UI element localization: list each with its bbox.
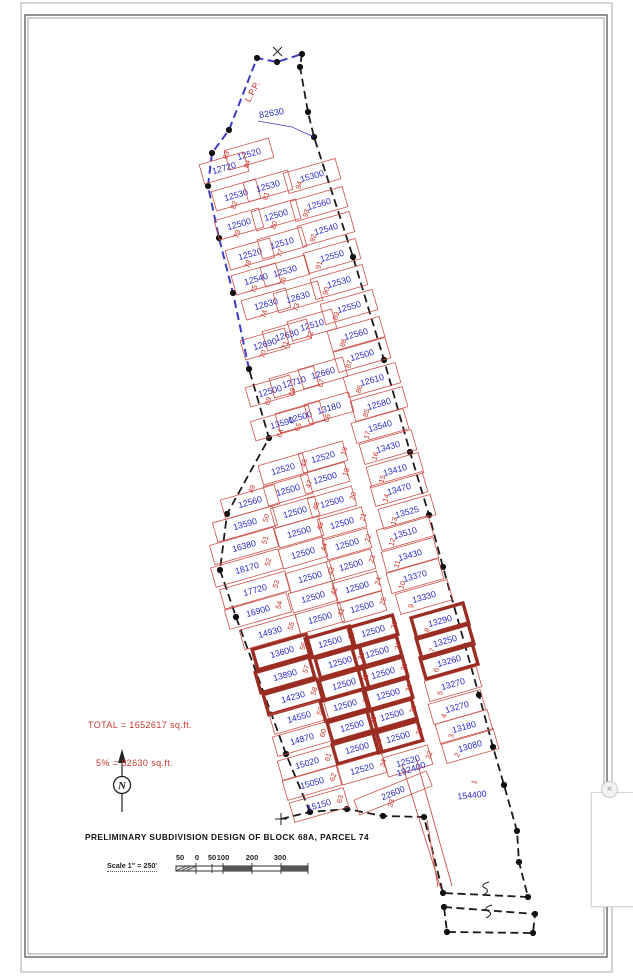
- lot-3-area-label: 13180: [451, 719, 477, 735]
- lot-38-area-label: 12500: [331, 676, 357, 692]
- section-squiggle-icon-2: [486, 905, 492, 918]
- lot-63-number-label: 63: [335, 794, 346, 804]
- lot-24-number-label: 24: [373, 576, 384, 586]
- lot-73-number-label: 73: [291, 302, 302, 312]
- boundary-dot: [440, 890, 446, 896]
- lot-19-number-label: 19: [341, 467, 352, 477]
- lot-22-number-label: 22: [363, 533, 374, 543]
- section-squiggle-icon: [483, 882, 489, 895]
- boundary-dot: [254, 55, 260, 61]
- lot-70-area-label: 12690: [252, 336, 278, 352]
- lot-69-number-label: 69: [263, 396, 274, 406]
- scale-tick-label: 0: [195, 853, 199, 862]
- lot-74-number-label: 74: [259, 309, 270, 319]
- boundary-dot: [217, 567, 223, 573]
- lot-30-area-label: 12500: [379, 707, 405, 723]
- lot-48-number-label: 48: [299, 458, 310, 468]
- lot-89-area-label: 12550: [336, 299, 362, 315]
- boundary-dot: [525, 894, 531, 900]
- lot-49-area-label: 12560: [237, 494, 263, 510]
- lot-19-area-label: 12500: [312, 470, 338, 486]
- annotation-lpp-label: L.P.P.: [243, 79, 262, 103]
- boundary-dot: [226, 127, 232, 133]
- scale-bar-seg-dark1: [223, 866, 252, 871]
- lot-52-area-label: 18170: [234, 560, 260, 576]
- lot-34-area-label: 12520: [349, 761, 375, 777]
- lot-48-area-label: 12520: [270, 461, 296, 477]
- lot-62-number-label: 62: [328, 772, 339, 782]
- boundary-dot: [380, 813, 386, 819]
- lot-25-number-label: 25: [378, 596, 389, 606]
- lot-39-area-label: 12500: [327, 654, 353, 670]
- lot-77-area-label: 12510: [269, 235, 295, 251]
- side-panel: [591, 792, 633, 907]
- lot-1-number-label: 1: [469, 779, 479, 785]
- lot-85-area-label: 12580: [366, 396, 392, 412]
- lot-62-area-label: 15050: [299, 775, 325, 791]
- lot-82-number-label: 82: [229, 200, 240, 210]
- scale-tick-label: 100: [217, 853, 230, 862]
- lot-41-area-label: 12500: [307, 610, 333, 626]
- boundary-dot: [421, 814, 427, 820]
- lot-73-area-label: 12630: [285, 289, 311, 305]
- lot-87-area-label: 12500: [349, 347, 375, 363]
- lot-9-area-label: 13330: [411, 589, 437, 605]
- boundary-dot: [209, 150, 215, 156]
- lot-11-area-label: 13430: [397, 547, 423, 563]
- lot-72-area-label: 12510: [299, 317, 325, 333]
- lot-61-number-label: 61: [323, 752, 334, 762]
- lot-84-area-label: 12520: [236, 146, 262, 162]
- lot-56-area-label: 13600: [269, 644, 295, 660]
- lot-23-area-label: 12500: [338, 557, 364, 573]
- scale-bar: [176, 863, 308, 874]
- lot-43-area-label: 12500: [297, 569, 323, 585]
- lot-92-area-label: 12540: [313, 221, 339, 237]
- lot-80-number-label: 80: [269, 220, 280, 230]
- scale-tick-label: 50: [176, 853, 184, 862]
- lot-78-number-label: 78: [243, 259, 254, 269]
- lot-59-area-label: 14550: [286, 709, 312, 725]
- lot-13-area-label: 13525: [394, 504, 420, 520]
- lot-71-area-label: 12630: [274, 327, 300, 343]
- lot-93-area-label: 12560: [306, 196, 332, 212]
- lots-layer: 1252084127208312530821253081125008012500…: [199, 138, 499, 822]
- five-percent-line: 5% = 82630 sq.ft.: [88, 757, 192, 770]
- lot-64-number-label: 64: [275, 428, 286, 438]
- lot-20-area-label: 12500: [319, 494, 345, 510]
- lot-25-area-label: 12500: [349, 599, 375, 615]
- lot-26-area-label: 12500: [360, 623, 386, 639]
- lot-53-area-label: 17720: [242, 582, 268, 598]
- scale-bar-seg-dark2: [281, 866, 308, 871]
- boundary-dot: [350, 254, 356, 260]
- lot-54-number-label: 54: [274, 600, 285, 610]
- lot-16-area-label: 13430: [375, 439, 401, 455]
- lot-51-area-label: 16380: [231, 538, 257, 554]
- lot-86-area-label: 12610: [359, 372, 385, 388]
- sheet-outer-frame: [21, 3, 612, 972]
- lot-21-area-label: 12500: [329, 515, 355, 531]
- lot-17-area-label: 13540: [367, 418, 393, 434]
- lot-94-area-label: 15300: [299, 168, 325, 184]
- lot-1-area-label: 154400: [457, 788, 487, 801]
- lot-60-number-label: 60: [318, 728, 329, 738]
- boundary-dot: [274, 59, 280, 65]
- lot-79-number-label: 79: [232, 229, 243, 239]
- lot-55-area-label: 14930: [257, 624, 283, 640]
- lot-90-area-label: 12530: [326, 274, 352, 290]
- lot-88-area-label: 12560: [343, 326, 369, 342]
- lot-61-area-label: 15020: [294, 755, 320, 771]
- scale-tick-label: 200: [246, 853, 259, 862]
- scale-label: Scale 1" = 250': [107, 861, 157, 872]
- area-leader-line: [258, 121, 314, 137]
- lot-79-area-label: 12500: [226, 216, 252, 232]
- boundary-dot: [516, 859, 522, 865]
- lot-18-area-label: 12520: [310, 449, 336, 465]
- lot-31-area-label: 12500: [385, 729, 411, 745]
- scale-tick-label: 300: [274, 853, 287, 862]
- lot-15-area-label: 13410: [382, 462, 408, 478]
- lot-27-area-label: 12500: [364, 644, 390, 660]
- annotation-82630-label: 82630: [258, 106, 284, 120]
- lot-24-area-label: 12500: [344, 579, 370, 595]
- sheet-inner-frame-2: [28, 18, 604, 954]
- lot-81-number-label: 81: [261, 191, 272, 201]
- lot-42-area-label: 12500: [300, 589, 326, 605]
- lot-60-area-label: 14870: [289, 731, 315, 747]
- lot-32-number-label: 32: [424, 750, 435, 760]
- lot-20-number-label: 20: [348, 491, 359, 501]
- area-summary: TOTAL = 1652617 sq.ft. 5% = 82630 sq.ft.: [88, 694, 192, 794]
- boundary-dot: [299, 51, 305, 57]
- lot-46-area-label: 12500: [282, 504, 308, 520]
- lot-45-area-label: 12500: [286, 524, 312, 540]
- lot-36-area-label: 12500: [339, 718, 365, 734]
- boundary-dot: [246, 366, 252, 372]
- lot-81-area-label: 12530: [255, 178, 281, 194]
- lot-50-area-label: 13590: [232, 516, 258, 532]
- lot-67-number-label: 67: [316, 378, 327, 388]
- lot-28-area-label: 12500: [370, 665, 396, 681]
- lot-14-area-label: 13470: [386, 481, 412, 497]
- lot-37-area-label: 12500: [332, 697, 358, 713]
- boundary-dot: [233, 614, 239, 620]
- lot-43-number-label: 43: [326, 566, 337, 576]
- lot-18-number-label: 18: [339, 446, 350, 456]
- boundary-dot: [501, 782, 507, 788]
- plat-sheet: 1252084127208312530821253081125008012500…: [0, 0, 633, 978]
- lot-41-number-label: 41: [336, 607, 347, 617]
- out-parcel-quad: [444, 907, 535, 933]
- sheet-inner-frame: [25, 15, 607, 957]
- lot-68-number-label: 68: [287, 387, 298, 397]
- lot-55-number-label: 55: [286, 621, 297, 631]
- lot-49-number-label: 49: [247, 484, 258, 494]
- lot-34-number-label: 34: [378, 758, 389, 768]
- lot-74-area-label: 12630: [253, 296, 279, 312]
- lot-75-number-label: 75: [249, 284, 260, 294]
- lot-33-number-label: 33: [386, 798, 397, 808]
- lot-77-number-label: 77: [275, 248, 286, 258]
- lot-5-area-label: 13270: [440, 676, 466, 692]
- lot-12-area-label: 13510: [392, 525, 418, 541]
- lot-35-area-label: 12500: [344, 740, 370, 756]
- scale-tick-label: 50: [208, 853, 216, 862]
- lot-83-area-label: 12720: [211, 160, 237, 176]
- lot-57-area-label: 13890: [272, 667, 298, 683]
- survey-plus-marker: [275, 813, 287, 825]
- survey-x-marker: [273, 47, 282, 56]
- lot-52-number-label: 52: [263, 557, 274, 567]
- panel-close-button[interactable]: ×: [601, 781, 618, 798]
- lot-21-number-label: 21: [358, 512, 369, 522]
- lot-53-number-label: 53: [271, 579, 282, 589]
- boundary-dot: [490, 744, 496, 750]
- total-area-line: TOTAL = 1652617 sq.ft.: [88, 719, 192, 732]
- lot-29-area-label: 12500: [375, 686, 401, 702]
- lot-40-area-label: 12500: [317, 634, 343, 650]
- boundary-dot: [297, 64, 303, 70]
- lot-80-area-label: 12500: [263, 207, 289, 223]
- lot-54-area-label: 16900: [245, 603, 271, 619]
- boundary-dot: [344, 806, 350, 812]
- sheet-title: PRELIMINARY SUBDIVISION DESIGN OF BLOCK …: [85, 832, 545, 842]
- lot-23-number-label: 23: [367, 554, 378, 564]
- lot-10-area-label: 13370: [402, 568, 428, 584]
- lot-22-area-label: 12500: [334, 536, 360, 552]
- lot-47-area-label: 12500: [275, 482, 301, 498]
- lot-51-number-label: 51: [260, 535, 271, 545]
- lot-91-area-label: 12550: [319, 248, 345, 264]
- lot-44-area-label: 12500: [290, 545, 316, 561]
- lot-70-number-label: 70: [258, 349, 269, 359]
- lot-83-number-label: 83: [221, 150, 232, 160]
- lot-50-number-label: 50: [261, 513, 272, 523]
- lot-64-area-label: 13590: [269, 415, 295, 431]
- lot-4-area-label: 13270: [444, 699, 470, 715]
- lot-58-area-label: 14230: [280, 689, 306, 705]
- lot-2-area-label: 13080: [457, 738, 483, 754]
- boundary-dot: [305, 109, 311, 115]
